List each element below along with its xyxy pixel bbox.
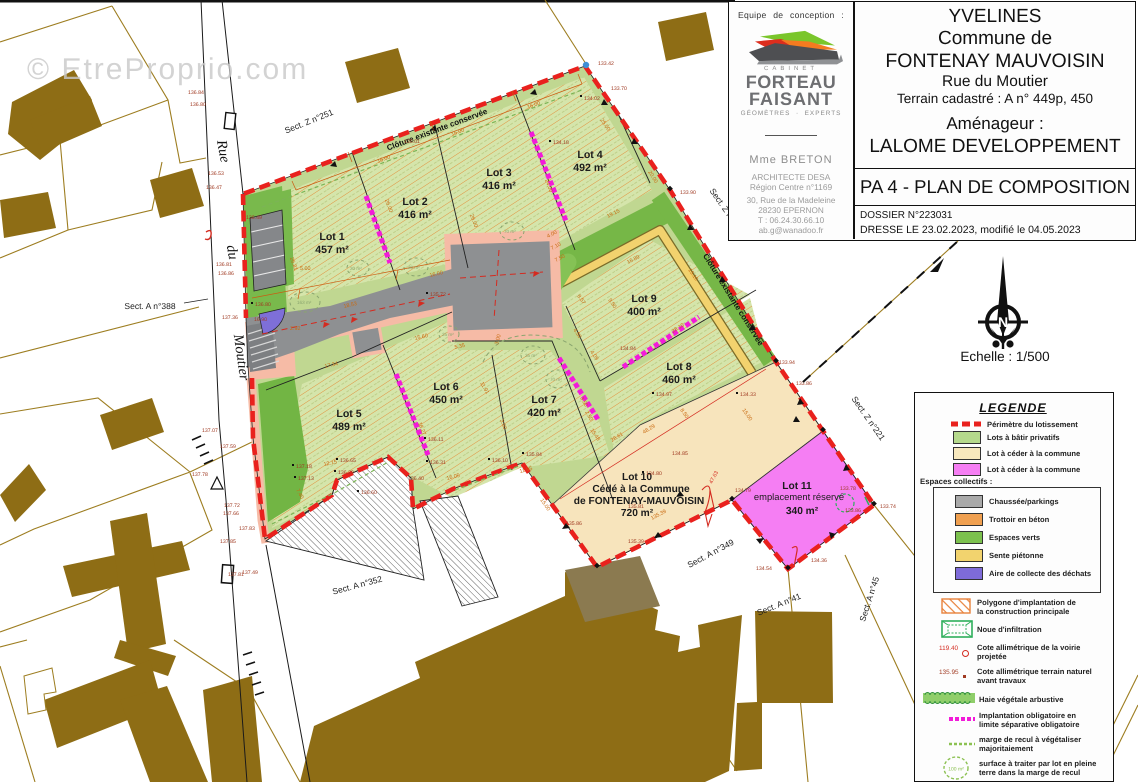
svg-text:70 m²: 70 m²: [504, 229, 516, 234]
svg-text:136.53: 136.53: [208, 171, 224, 177]
svg-text:135.01: 135.01: [404, 139, 420, 145]
svg-text:Lot 1: Lot 1: [319, 231, 344, 243]
svg-text:134.18: 134.18: [553, 140, 569, 146]
svg-text:Lot 9: Lot 9: [631, 293, 656, 305]
svg-text:135.72: 135.72: [430, 292, 446, 298]
svg-text:Lot 8: Lot 8: [666, 361, 691, 373]
svg-text:137.07: 137.07: [202, 428, 218, 434]
svg-text:du: du: [223, 244, 241, 261]
svg-text:137.59: 137.59: [220, 444, 236, 450]
svg-text:136.29: 136.29: [338, 470, 354, 476]
svg-text:136.40: 136.40: [408, 476, 424, 482]
svg-text:136.80: 136.80: [190, 102, 206, 108]
svg-text:457 m²: 457 m²: [315, 244, 349, 256]
svg-text:Lot 6: Lot 6: [433, 381, 458, 393]
svg-text:136.10: 136.10: [492, 458, 508, 464]
svg-text:133.90: 133.90: [680, 190, 696, 196]
svg-text:134.80: 134.80: [646, 471, 662, 477]
svg-text:5.00: 5.00: [300, 266, 311, 272]
svg-text:Sect. A n°388: Sect. A n°388: [124, 301, 175, 311]
svg-text:137.18: 137.18: [296, 464, 312, 470]
svg-text:137.83: 137.83: [239, 526, 255, 532]
svg-text:emplacement réservé: emplacement réservé: [754, 491, 844, 502]
svg-text:2.92: 2.92: [290, 326, 301, 332]
svg-text:137.66: 137.66: [223, 511, 239, 517]
svg-text:136.60: 136.60: [361, 490, 377, 496]
svg-text:340 m²: 340 m²: [786, 506, 819, 517]
svg-text:416 m²: 416 m²: [482, 180, 516, 192]
svg-text:134.79: 134.79: [735, 488, 751, 494]
svg-text:492 m²: 492 m²: [573, 162, 607, 174]
svg-text:Lot 2: Lot 2: [402, 196, 427, 208]
svg-text:134.02: 134.02: [584, 96, 600, 102]
svg-text:136.49: 136.49: [246, 215, 262, 221]
svg-text:136.31: 136.31: [430, 460, 446, 466]
svg-text:137.85: 137.85: [220, 539, 236, 545]
svg-text:134.54: 134.54: [756, 566, 772, 572]
svg-text:136.86: 136.86: [218, 271, 234, 277]
svg-text:489 m²: 489 m²: [332, 421, 366, 433]
svg-text:134.97: 134.97: [656, 392, 672, 398]
svg-text:35 m²: 35 m²: [525, 353, 537, 358]
svg-text:30 m²: 30 m²: [350, 266, 362, 271]
svg-text:400 m²: 400 m²: [627, 306, 661, 318]
svg-text:136.47: 136.47: [206, 185, 222, 191]
svg-text:Lot 7: Lot 7: [531, 394, 556, 406]
svg-text:Lot 4: Lot 4: [577, 149, 602, 161]
svg-text:136.80: 136.80: [255, 302, 271, 308]
svg-text:30 m²: 30 m²: [408, 265, 420, 270]
svg-text:135.84: 135.84: [526, 452, 542, 458]
svg-text:Lot 3: Lot 3: [486, 167, 511, 179]
svg-text:25 m²: 25 m²: [442, 332, 454, 337]
svg-text:134.36: 134.36: [811, 558, 827, 564]
svg-text:137.72: 137.72: [224, 503, 240, 509]
svg-text:N: N: [998, 314, 1008, 330]
svg-text:© EtreProprio.com: © EtreProprio.com: [27, 53, 308, 86]
svg-text:135.81: 135.81: [628, 504, 644, 510]
svg-text:70 m²: 70 m²: [550, 377, 562, 382]
svg-text:137.49: 137.49: [242, 570, 258, 576]
svg-text:137.13: 137.13: [298, 476, 314, 482]
svg-text:450 m²: 450 m²: [429, 394, 463, 406]
svg-text:16.90: 16.90: [254, 317, 267, 323]
svg-text:133.42: 133.42: [598, 61, 614, 67]
svg-text:133.70: 133.70: [611, 86, 627, 92]
svg-text:137.78: 137.78: [192, 472, 208, 478]
svg-text:134.33: 134.33: [740, 392, 756, 398]
svg-text:137.36: 137.36: [222, 315, 238, 321]
svg-text:133.94: 133.94: [779, 360, 795, 366]
svg-text:460 m²: 460 m²: [662, 374, 696, 386]
svg-text:136.81: 136.81: [216, 262, 232, 268]
svg-text:Lot 5: Lot 5: [336, 408, 361, 420]
svg-text:135.86: 135.86: [566, 521, 582, 527]
svg-text:134.85: 134.85: [672, 451, 688, 457]
svg-text:136.11: 136.11: [428, 437, 444, 443]
svg-text:133.78: 133.78: [840, 486, 856, 492]
svg-text:163 m²: 163 m²: [297, 300, 312, 305]
svg-text:133.86: 133.86: [845, 508, 861, 514]
svg-text:Cédé à la Commune: Cédé à la Commune: [592, 484, 690, 495]
svg-text:416 m²: 416 m²: [398, 209, 432, 221]
svg-text:420 m²: 420 m²: [527, 407, 561, 419]
svg-text:136.65: 136.65: [340, 458, 356, 464]
svg-text:136.84: 136.84: [188, 90, 204, 96]
svg-text:100 m²: 100 m²: [948, 767, 964, 773]
svg-text:135.39: 135.39: [628, 539, 644, 545]
svg-text:134.84: 134.84: [620, 346, 636, 352]
svg-text:133.74: 133.74: [880, 504, 896, 510]
